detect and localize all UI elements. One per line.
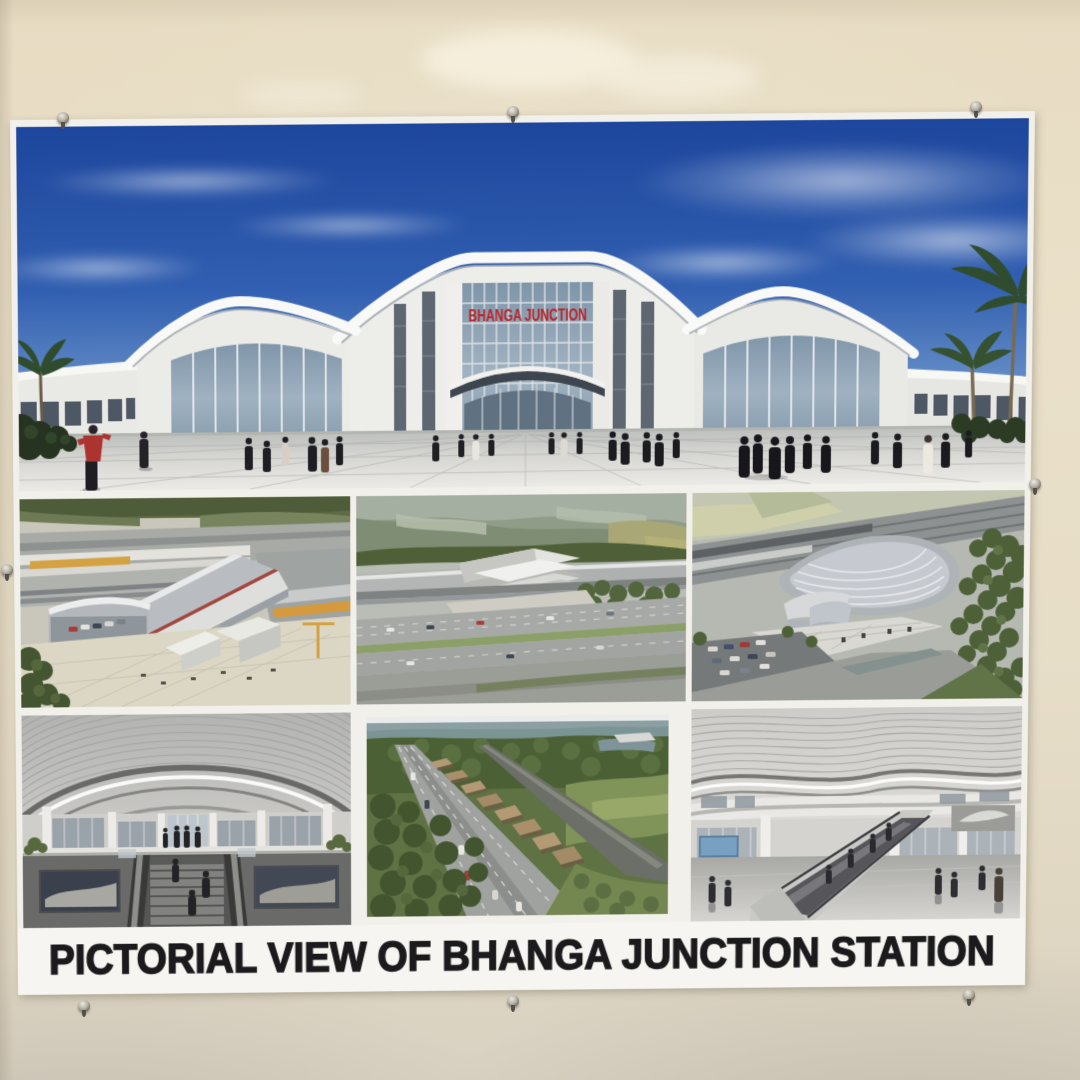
svg-text:BHANGA JUNCTION: BHANGA JUNCTION: [468, 304, 587, 325]
